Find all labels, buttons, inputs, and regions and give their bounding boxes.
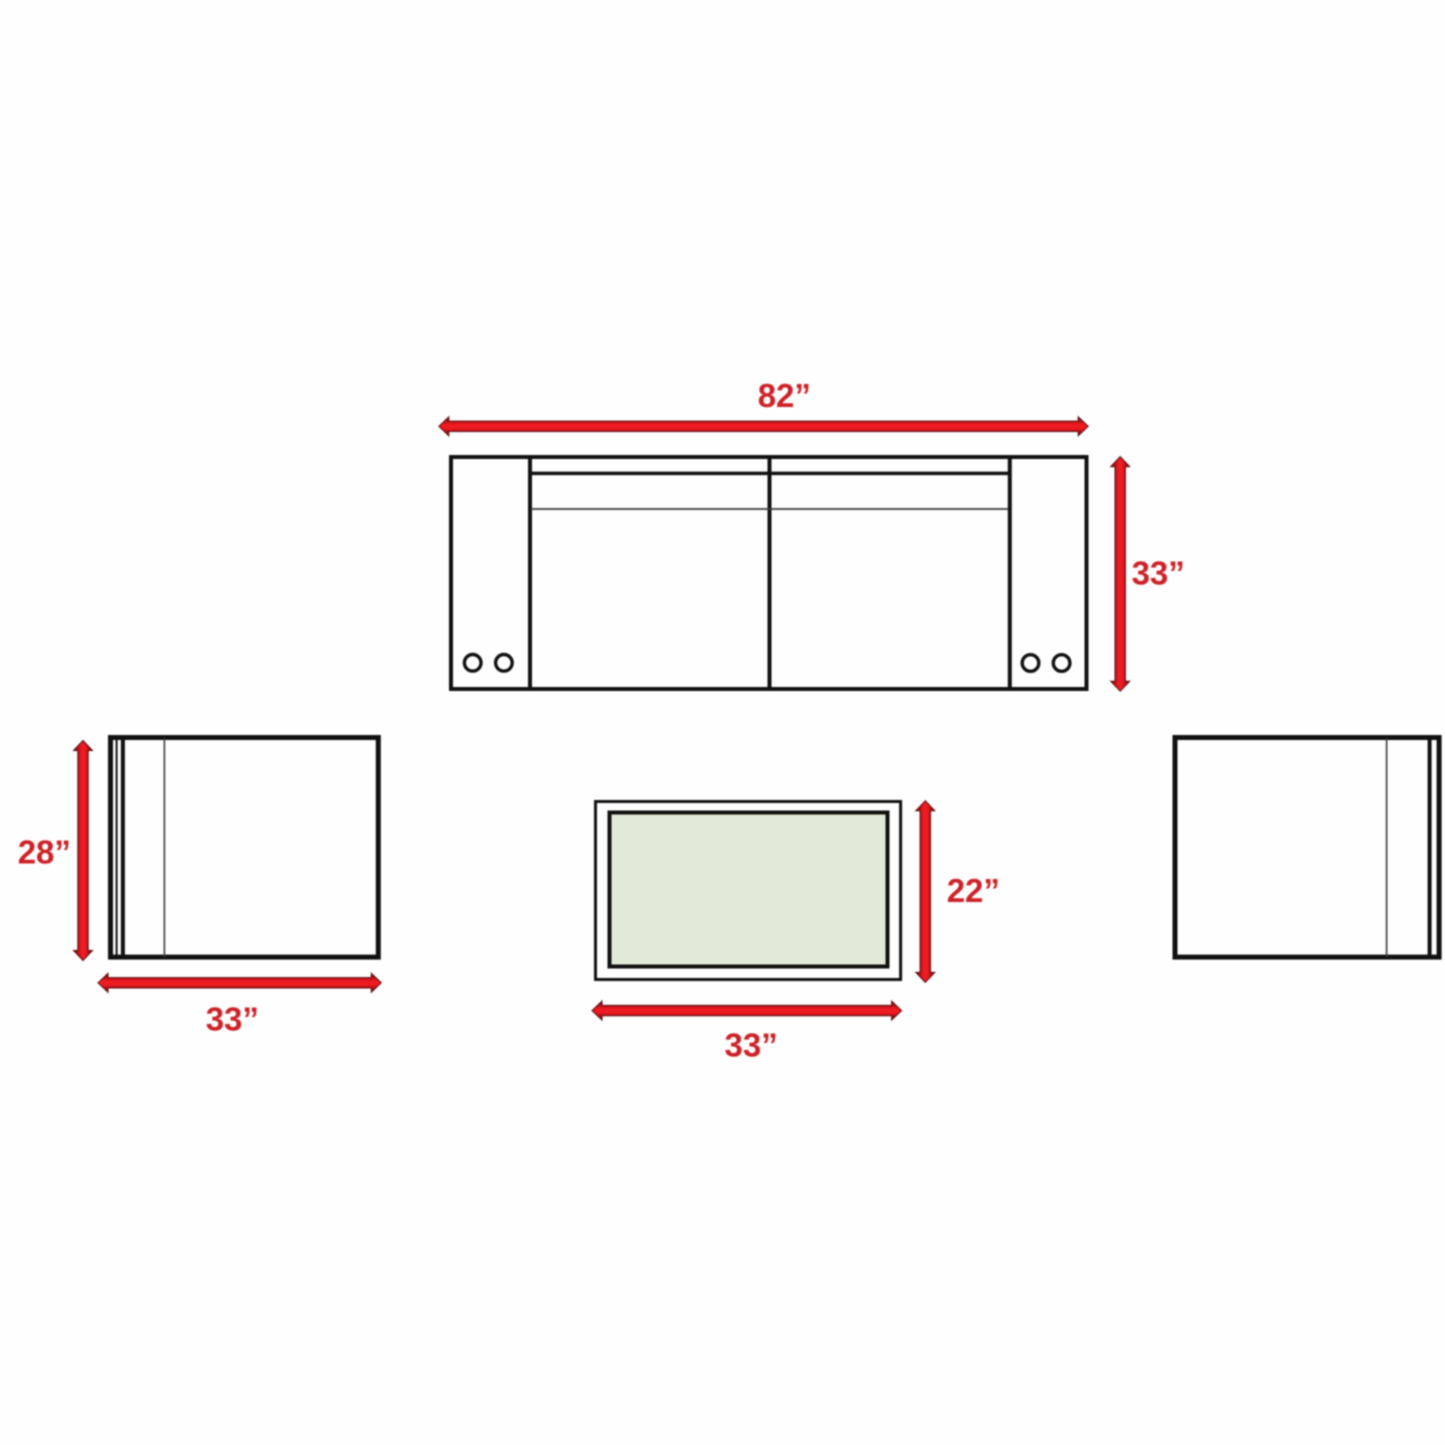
svg-text:22”: 22” (947, 872, 1000, 909)
svg-text:82”: 82” (758, 377, 811, 414)
svg-text:33”: 33” (724, 1026, 777, 1063)
svg-text:28”: 28” (18, 833, 71, 870)
svg-text:33”: 33” (1132, 555, 1185, 592)
svg-text:33”: 33” (206, 1000, 259, 1037)
